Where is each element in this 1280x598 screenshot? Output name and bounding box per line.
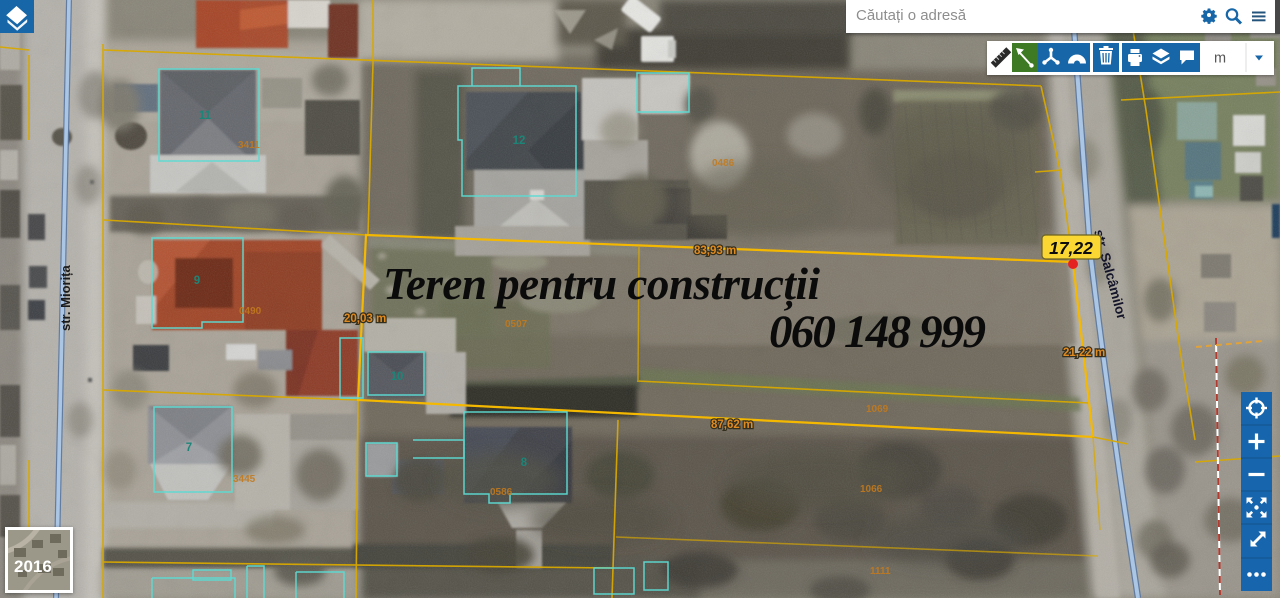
svg-text:7: 7 <box>186 442 192 454</box>
svg-text:12: 12 <box>513 135 526 147</box>
svg-text:1066: 1066 <box>860 484 883 495</box>
svg-text:21,22 m: 21,22 m <box>1063 347 1105 359</box>
svg-text:3445: 3445 <box>233 474 256 485</box>
svg-text:1069: 1069 <box>866 404 889 415</box>
svg-text:17,22: 17,22 <box>1049 238 1093 258</box>
svg-text:m: m <box>1214 51 1226 67</box>
svg-text:3411: 3411 <box>238 140 260 151</box>
svg-text:8: 8 <box>521 457 528 469</box>
svg-text:87,62 m: 87,62 m <box>711 419 753 431</box>
svg-text:1111: 1111 <box>870 566 891 577</box>
svg-text:20,03 m: 20,03 m <box>344 313 386 325</box>
svg-text:str. Miorița: str. Miorița <box>58 264 73 331</box>
svg-text:2016: 2016 <box>14 557 52 576</box>
svg-text:0507: 0507 <box>505 319 528 330</box>
svg-text:83,93 m: 83,93 m <box>694 245 736 257</box>
svg-text:0490: 0490 <box>239 306 262 317</box>
svg-text:0486: 0486 <box>712 158 735 169</box>
svg-text:0586: 0586 <box>490 487 513 498</box>
svg-text:10: 10 <box>391 371 404 383</box>
svg-text:Teren pentru construcții: Teren pentru construcții <box>383 259 820 310</box>
svg-text:060 148 999: 060 148 999 <box>769 306 986 358</box>
svg-text:11: 11 <box>199 110 212 122</box>
svg-text:9: 9 <box>194 275 200 287</box>
